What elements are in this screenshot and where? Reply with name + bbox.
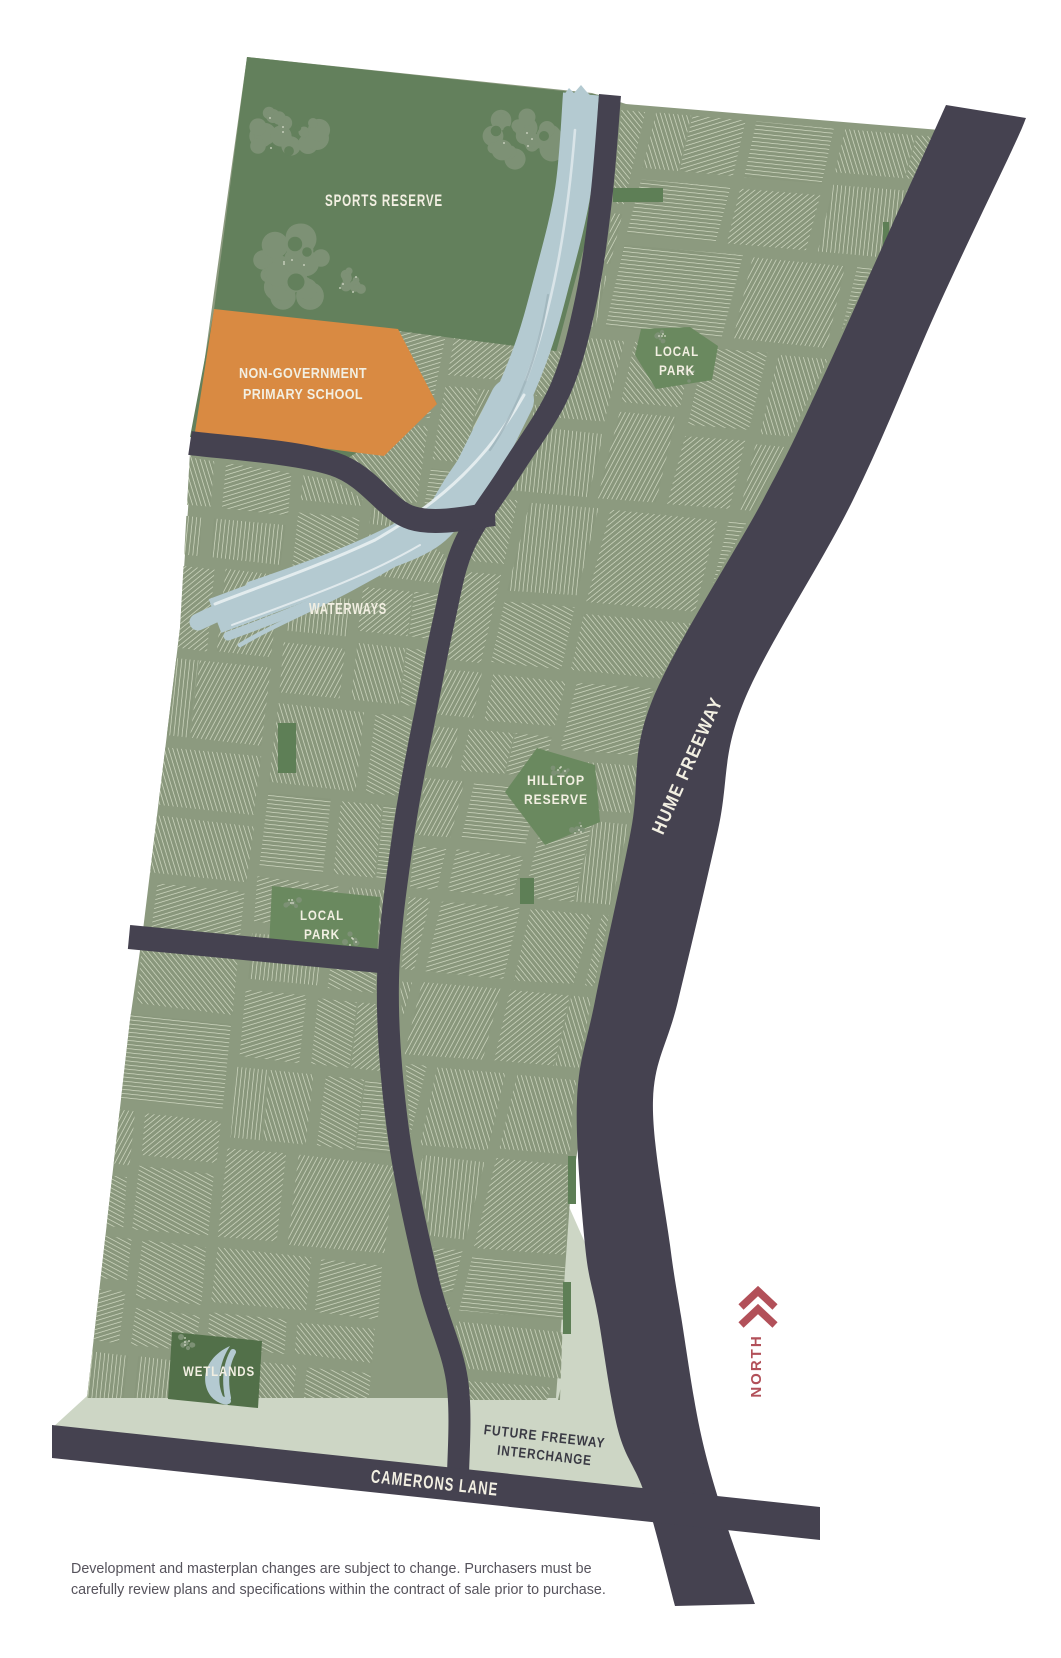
svg-text:WATERWAYS: WATERWAYS xyxy=(309,601,387,618)
svg-text:LOCAL: LOCAL xyxy=(300,908,344,923)
svg-text:RESERVE: RESERVE xyxy=(524,792,588,807)
svg-text:WETLANDS: WETLANDS xyxy=(183,1364,255,1379)
svg-text:HILLTOP: HILLTOP xyxy=(527,773,585,788)
svg-text:PARK: PARK xyxy=(304,927,340,942)
svg-text:PARK: PARK xyxy=(659,363,695,378)
svg-text:PRIMARY SCHOOL: PRIMARY SCHOOL xyxy=(243,386,363,403)
svg-text:SPORTS RESERVE: SPORTS RESERVE xyxy=(325,192,443,210)
svg-text:LOCAL: LOCAL xyxy=(655,344,699,359)
svg-text:NON-GOVERNMENT: NON-GOVERNMENT xyxy=(239,365,367,382)
svg-text:NORTH: NORTH xyxy=(748,1334,765,1397)
